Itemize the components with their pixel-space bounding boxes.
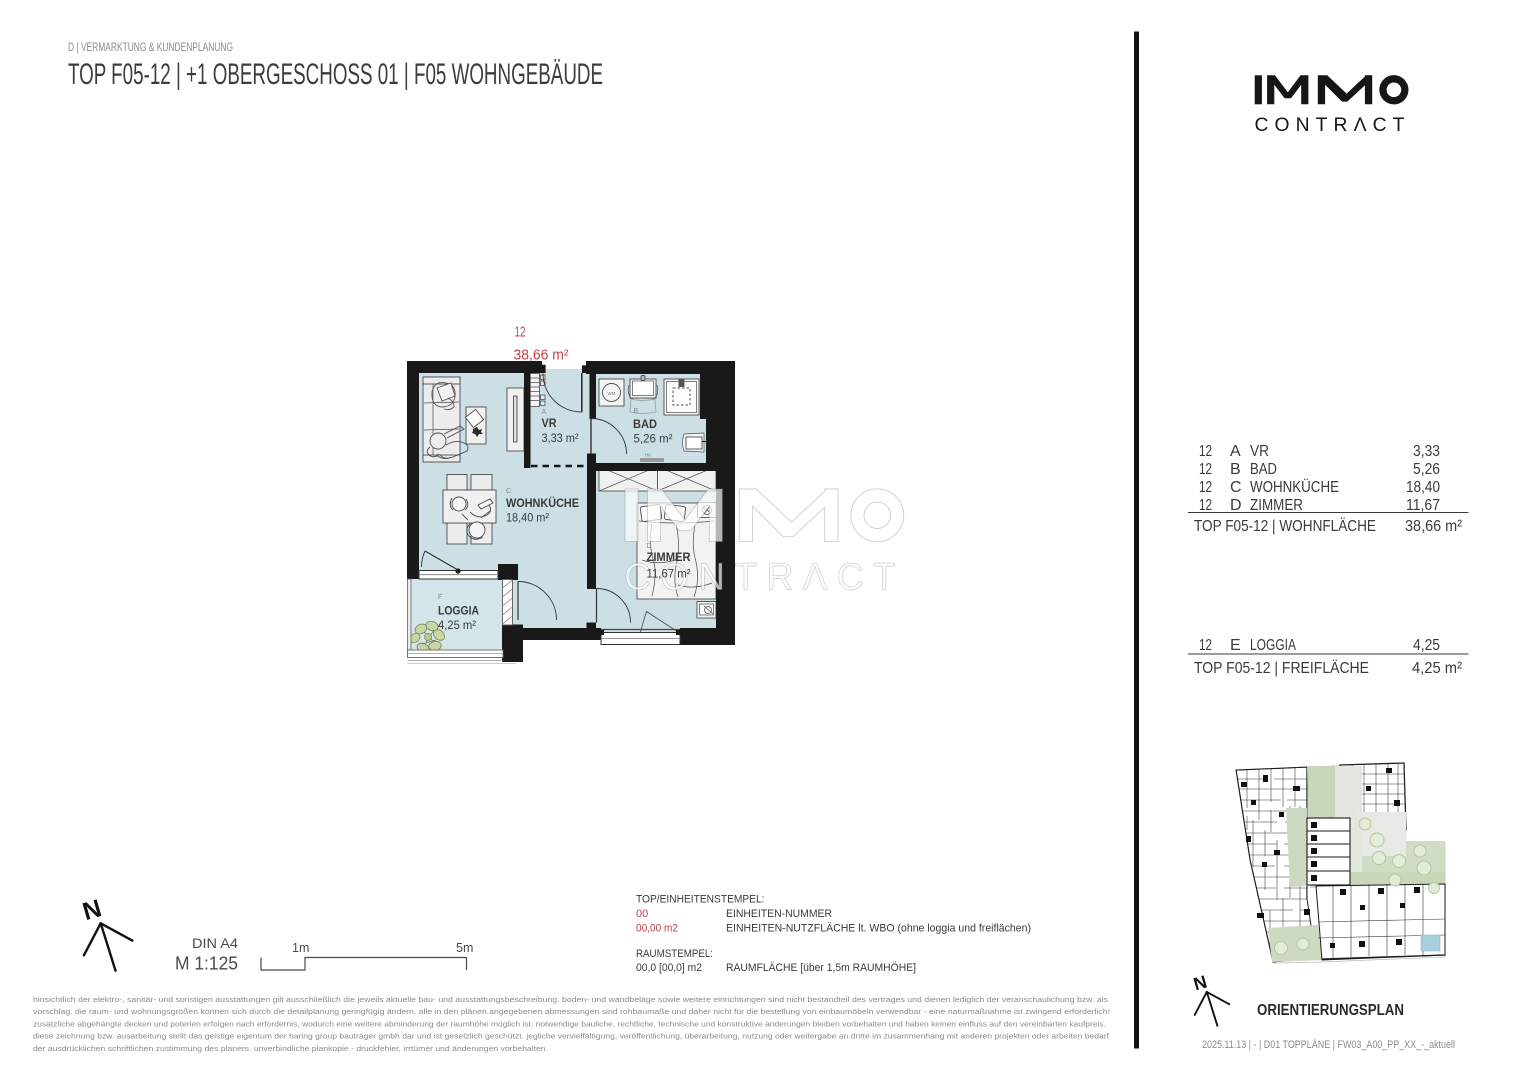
svg-text:A: A — [1230, 443, 1241, 460]
svg-text:der ausdrücklichen schriftlich: der ausdrücklichen schriftlichen zustimm… — [33, 1044, 548, 1053]
svg-text:3,33 m²: 3,33 m² — [542, 431, 579, 445]
svg-text:EINHEITEN-NUMMER: EINHEITEN-NUMMER — [726, 908, 832, 920]
svg-text:ZIMMER: ZIMMER — [647, 550, 691, 564]
svg-text:1m: 1m — [292, 941, 309, 955]
svg-text:11,67 m²: 11,67 m² — [647, 567, 691, 581]
svg-text:12: 12 — [1199, 497, 1212, 514]
svg-text:18,40: 18,40 — [1406, 479, 1440, 496]
svg-text:WM: WM — [608, 391, 616, 396]
svg-text:zusätzliche abgehängte decken: zusätzliche abgehängte decken und poteri… — [33, 1019, 1106, 1028]
svg-text:00,00 m2: 00,00 m2 — [636, 923, 678, 935]
svg-text:12: 12 — [1199, 461, 1212, 478]
svg-text:BAD: BAD — [1250, 461, 1277, 478]
svg-text:EINHEITEN-NUTZFLÄCHE lt. WBO (: EINHEITEN-NUTZFLÄCHE lt. WBO (ohne loggi… — [726, 923, 1031, 935]
svg-text:hinsichtlich der elektro-, san: hinsichtlich der elektro-, sanitär- und … — [33, 995, 1108, 1004]
svg-text:D: D — [1230, 497, 1242, 514]
svg-text:4,25 m²: 4,25 m² — [1412, 660, 1463, 677]
svg-text:WOHNKÜCHE: WOHNKÜCHE — [1250, 478, 1339, 496]
svg-text:TOP F05-12 | +1 OBERGESCHOSS 0: TOP F05-12 | +1 OBERGESCHOSS 01 | F05 WO… — [68, 58, 603, 91]
svg-text:5m: 5m — [456, 941, 473, 955]
svg-text:11,67: 11,67 — [1406, 497, 1440, 514]
svg-text:D | VERMARKTUNG & KUNDENPLANUN: D | VERMARKTUNG & KUNDENPLANUNG — [68, 42, 233, 54]
svg-text:VR: VR — [542, 416, 557, 430]
svg-text:38,66 m²: 38,66 m² — [1405, 518, 1463, 535]
svg-text:ORIENTIERUNGSPLAN: ORIENTIERUNGSPLAN — [1257, 1002, 1404, 1019]
svg-text:C: C — [506, 488, 511, 495]
svg-text:B: B — [1230, 461, 1241, 478]
svg-text:A: A — [542, 409, 547, 416]
svg-text:ZIMMER: ZIMMER — [1250, 497, 1303, 514]
svg-text:4,25: 4,25 — [1413, 637, 1440, 654]
svg-text:B: B — [634, 408, 639, 415]
svg-text:DIN A4: DIN A4 — [192, 936, 239, 951]
svg-text:12: 12 — [1199, 479, 1212, 496]
svg-text:00,0 [00,0] m2: 00,0 [00,0] m2 — [636, 962, 702, 974]
svg-text:WOHNKÜCHE: WOHNKÜCHE — [506, 495, 579, 510]
svg-text:LOGGIA: LOGGIA — [1250, 637, 1296, 654]
svg-text:TOP F05-12 | FREIFLÄCHE: TOP F05-12 | FREIFLÄCHE — [1194, 659, 1369, 677]
svg-text:D: D — [647, 543, 652, 550]
svg-text:HK: HK — [645, 453, 651, 458]
svg-text:N: N — [80, 894, 105, 926]
svg-text:E: E — [1230, 637, 1241, 654]
svg-text:CONTRΛCT: CONTRΛCT — [1255, 115, 1411, 136]
svg-text:5,26: 5,26 — [1413, 461, 1440, 478]
svg-text:VR: VR — [1250, 443, 1269, 460]
svg-text:F: F — [438, 594, 442, 601]
svg-text:RAUMSTEMPEL:: RAUMSTEMPEL: — [636, 948, 713, 960]
svg-text:12: 12 — [1199, 443, 1212, 460]
svg-text:38,66 m²: 38,66 m² — [514, 348, 569, 364]
svg-text:4,25 m²: 4,25 m² — [438, 618, 476, 632]
svg-text:diese zeichnung bzw. ausarbeit: diese zeichnung bzw. ausarbeitung stellt… — [33, 1032, 1110, 1041]
svg-text:5,26 m²: 5,26 m² — [634, 432, 673, 446]
svg-text:18,40 m²: 18,40 m² — [506, 511, 549, 525]
svg-text:vorschlag. die raum- und wohnu: vorschlag. die raum- und wohnungsgrößen … — [33, 1007, 1110, 1016]
svg-text:N: N — [1191, 971, 1209, 994]
svg-text:BAD: BAD — [633, 417, 657, 431]
svg-text:RAUMFLÄCHE [über 1,5m RAUMHÖHE: RAUMFLÄCHE [über 1,5m RAUMHÖHE] — [726, 962, 916, 974]
svg-text:12: 12 — [1199, 637, 1212, 654]
svg-text:12: 12 — [515, 325, 526, 341]
svg-text:3,33: 3,33 — [1413, 443, 1440, 460]
svg-text:TOP F05-12 | WOHNFLÄCHE: TOP F05-12 | WOHNFLÄCHE — [1194, 517, 1376, 535]
svg-text:2025.11.13 | - | D01 TOPPLÄNE: 2025.11.13 | - | D01 TOPPLÄNE | FW03_A00… — [1202, 1039, 1455, 1051]
svg-text:M 1:125: M 1:125 — [175, 954, 238, 974]
svg-text:C: C — [1230, 479, 1242, 496]
svg-text:LOGGIA: LOGGIA — [438, 604, 479, 618]
svg-text:00: 00 — [636, 908, 648, 920]
svg-text:TOP/EINHEITENSTEMPEL:: TOP/EINHEITENSTEMPEL: — [636, 894, 765, 906]
